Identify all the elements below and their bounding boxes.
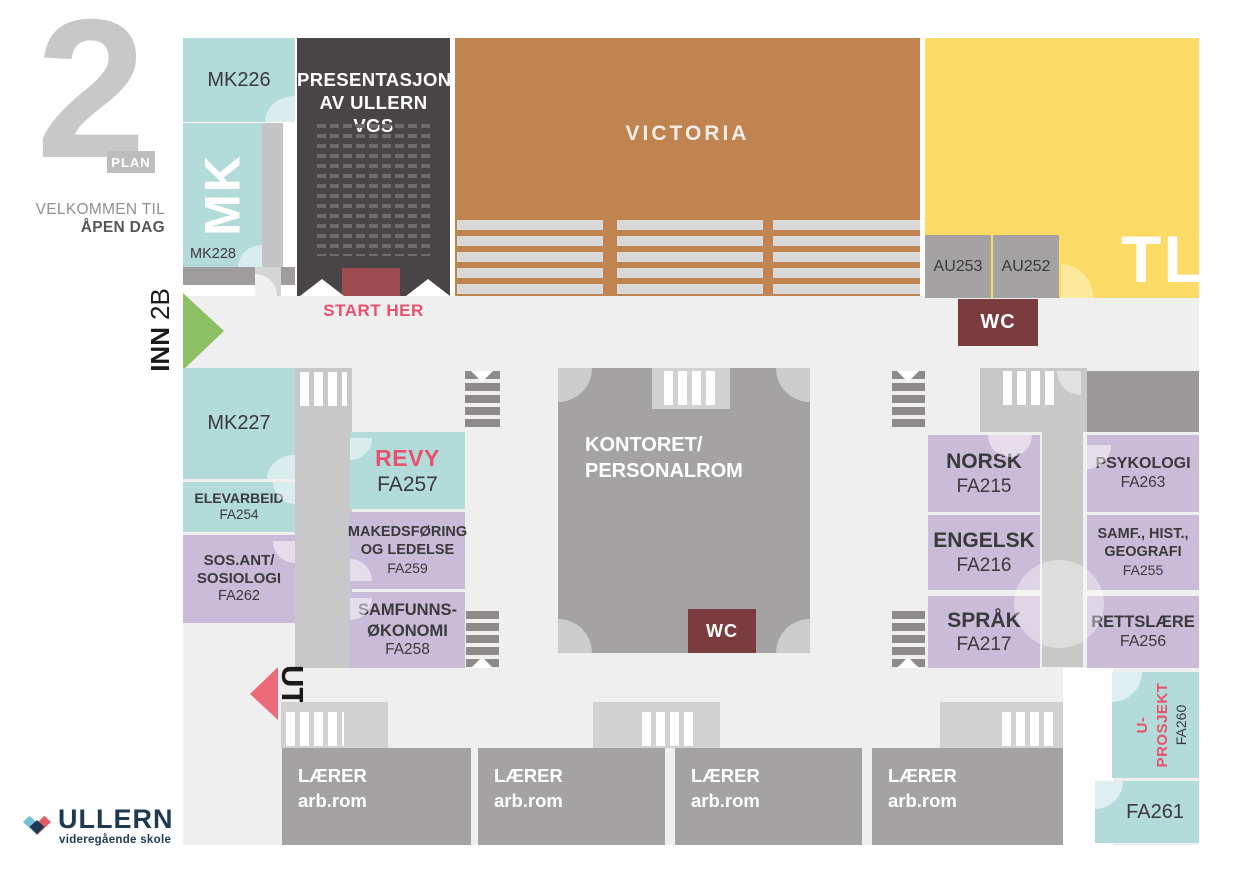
door-arc [238, 245, 262, 267]
table-rows [773, 220, 920, 296]
door-arc [255, 274, 277, 296]
room-au252: AU252 [993, 235, 1059, 298]
room-psykologi: PSYKOLOGI FA263 [1087, 435, 1199, 512]
stairs-icon [466, 611, 499, 668]
room-sprak: SPRÅK FA217 [928, 596, 1040, 668]
welcome-line-1: VELKOMMEN TIL [25, 201, 165, 219]
door-arc [265, 96, 295, 122]
room-uprosjekt: U-PROSJEKT FA260 [1112, 672, 1199, 778]
room-markedsforing: MAKEDSFØRING OG LEDELSE FA259 [350, 512, 465, 589]
stairs-icon [281, 702, 388, 748]
door-stub [255, 267, 281, 296]
inn-gate-text: 2B [145, 288, 176, 320]
laerer-name: LÆRER [494, 765, 563, 786]
corridor-left [295, 368, 352, 668]
room-norsk: NORSK FA215 [928, 435, 1040, 512]
audience-seats [317, 124, 431, 256]
school-logo-subtitle: videregående skole [59, 834, 171, 846]
room-unlabeled [1087, 371, 1199, 432]
floor-plan: 2 PLAN VELKOMMEN TIL ÅPEN DAG MK226 MK M… [0, 0, 1240, 886]
stage [342, 268, 400, 296]
stairs-icon [892, 371, 925, 427]
room-mk228-label: MK228 [190, 246, 236, 262]
laerer-name: LÆRER [691, 765, 760, 786]
stairs-icon [652, 368, 730, 409]
tl-label: TL [1121, 228, 1206, 290]
plan-word-badge: PLAN [107, 151, 155, 173]
room-laerer-1: LÆRER arb.rom [282, 748, 471, 845]
room-revy: REVY FA257 [350, 432, 465, 509]
hall-mk: MK MK228 [183, 123, 262, 267]
table-rows [617, 220, 763, 296]
stairs-icon [940, 702, 1063, 748]
wc-corridor: WC [958, 299, 1038, 346]
entrance-inn-arrow [183, 293, 224, 370]
room-elevarbeid: ELEVARBEID FA254 [183, 482, 295, 532]
room-mk227: MK227 [183, 368, 295, 479]
corridor-right-vertical [1042, 432, 1083, 667]
room-engelsk: ENGELSK FA216 [928, 515, 1040, 590]
room-samfunnsokonomi: SAMFUNNS- ØKONOMI FA258 [350, 592, 465, 668]
door-arc [558, 368, 592, 402]
uprosjekt-code: FA260 [1172, 675, 1190, 775]
stairs-icon [465, 371, 500, 427]
door-arc [267, 455, 295, 479]
welcome-line-2: ÅPEN DAG [25, 219, 165, 237]
room-au253: AU253 [925, 235, 991, 298]
hall-kontoret: KONTORET/ PERSONALROM WC [558, 368, 810, 653]
laerer-sub: arb.rom [691, 790, 760, 811]
room-laerer-3: LÆRER arb.rom [675, 748, 862, 845]
start-her-label: START HER [297, 301, 450, 321]
room-laerer-2: LÆRER arb.rom [478, 748, 665, 845]
school-logo-name: ULLERN [58, 804, 174, 835]
entry-triangle-left [300, 279, 344, 296]
door-arc [558, 619, 592, 653]
hall-presentasjon: PRESENTASJON AV ULLERN VGS [297, 38, 450, 296]
room-fa261: FA261 [1095, 781, 1199, 843]
laerer-sub: arb.rom [298, 790, 367, 811]
kontoret-line-2: PERSONALROM [585, 460, 743, 482]
door-arc [350, 559, 372, 581]
laerer-name: LÆRER [888, 765, 957, 786]
laerer-name: LÆRER [298, 765, 367, 786]
door-arc [273, 541, 295, 563]
room-samf-hist-geografi: SAMF., HIST., GEOGRAFI FA255 [1087, 515, 1199, 590]
stairs-icon [300, 372, 347, 406]
stairs-icon [892, 611, 925, 668]
kontoret-line-1: KONTORET/ [585, 434, 702, 456]
stairs-icon [1003, 371, 1055, 405]
door-arc [776, 619, 810, 653]
door-arc [1095, 781, 1123, 809]
hall-victoria: VICTORIA [455, 38, 920, 296]
wc-kontoret: WC [688, 609, 756, 653]
room-mk226: MK226 [183, 38, 295, 122]
inn-text: INN [145, 327, 176, 372]
corridor-right-top [980, 368, 1087, 432]
stairs-icon [593, 702, 720, 748]
room-rettslaere: RETTSLÆRE FA256 [1087, 596, 1199, 668]
uprosjekt-name: U-PROSJEKT [1133, 675, 1172, 775]
door-arc [350, 438, 372, 460]
area-tl: TL AU253 AU252 [925, 38, 1199, 298]
corridor-mk [262, 123, 283, 267]
entry-triangle-right [406, 279, 450, 296]
school-logo-icon [22, 806, 52, 838]
room-laerer-4: LÆRER arb.rom [872, 748, 1063, 845]
door-arc [1057, 371, 1081, 395]
laerer-sub: arb.rom [494, 790, 563, 811]
entrance-inn-label: INN 2B [140, 278, 180, 382]
room-sosant-sosiologi: SOS.ANT/ SOSIOLOGI FA262 [183, 535, 295, 623]
presentasjon-line-1: PRESENTASJON [297, 69, 452, 90]
laerer-sub: arb.rom [888, 790, 957, 811]
victoria-label: VICTORIA [455, 122, 920, 146]
door-arc [776, 368, 810, 402]
door-arc [1061, 264, 1093, 298]
table-rows [457, 220, 603, 296]
plan-number: 2 [36, 8, 146, 170]
